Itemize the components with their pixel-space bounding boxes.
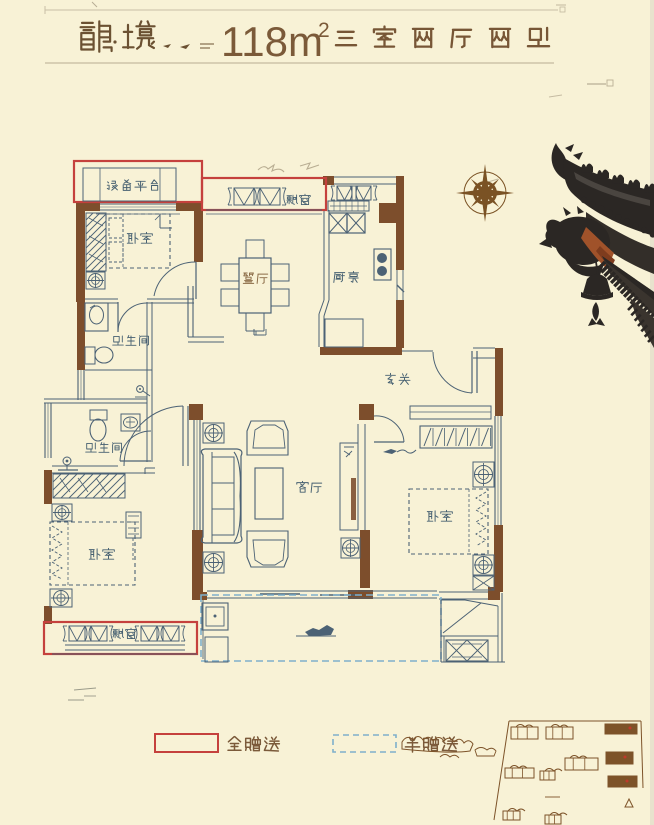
svg-text:2: 2: [318, 19, 330, 42]
svg-text:118m: 118m: [221, 18, 323, 65]
